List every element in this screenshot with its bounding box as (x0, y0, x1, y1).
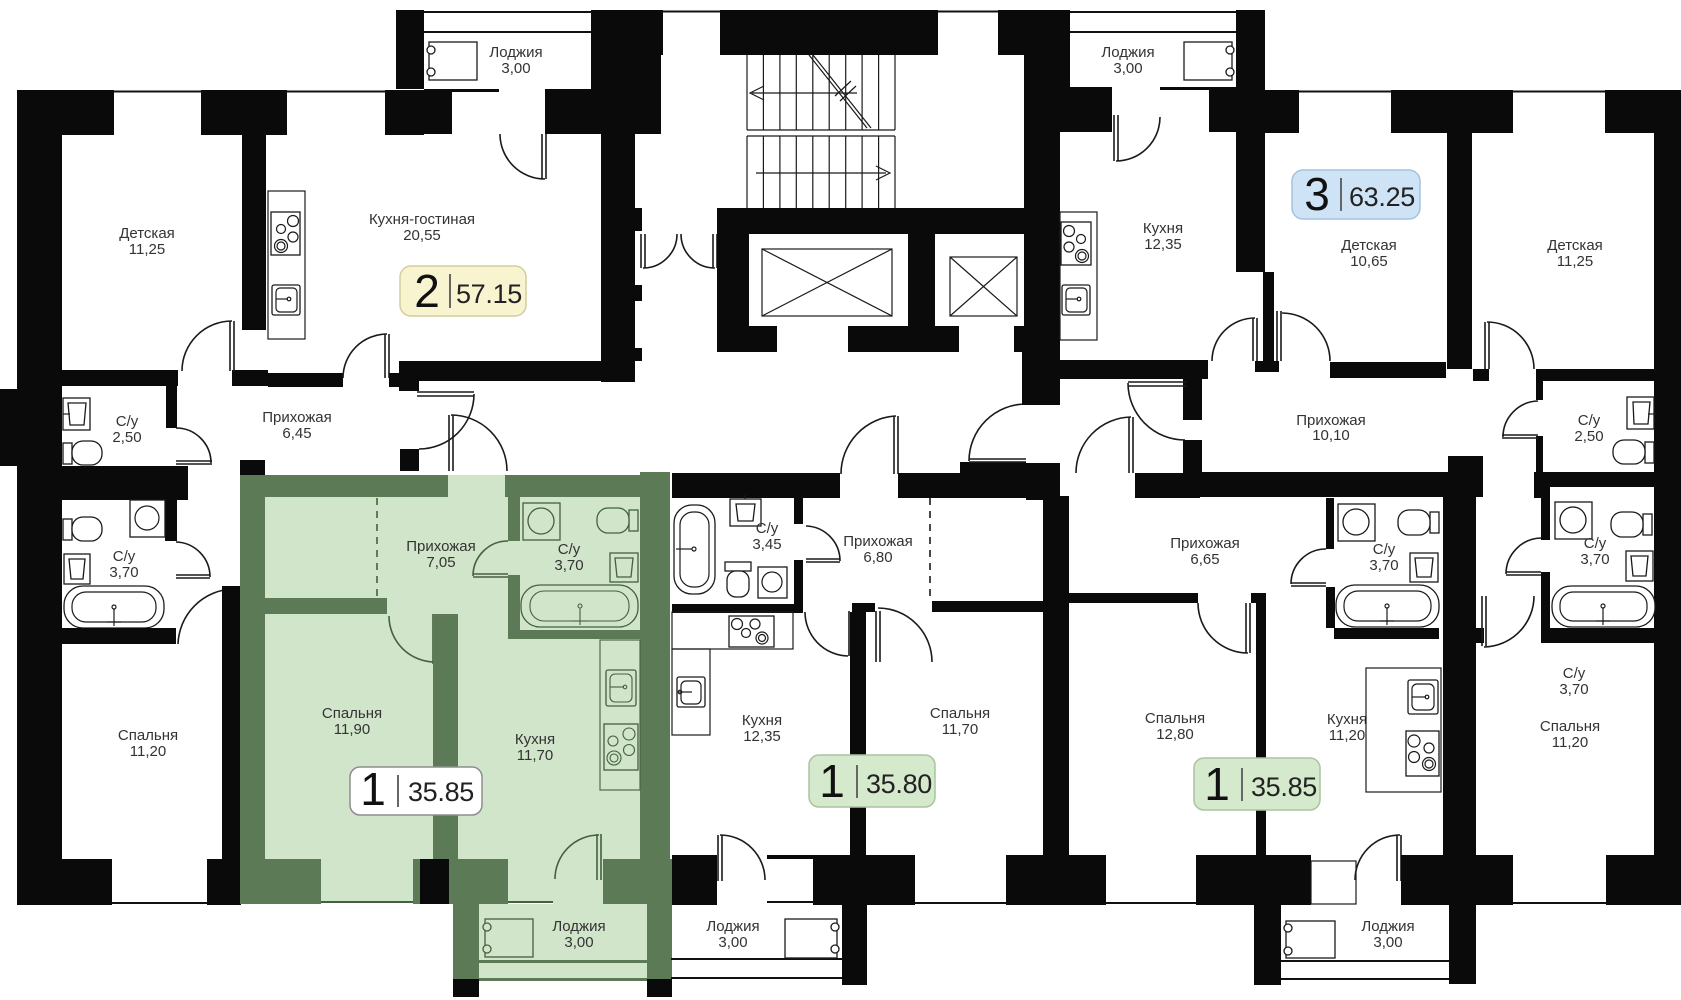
svg-text:11,20: 11,20 (1552, 734, 1588, 751)
svg-text:1: 1 (360, 763, 386, 815)
svg-text:С/у: С/у (1578, 412, 1601, 429)
svg-text:3: 3 (1304, 168, 1330, 220)
svg-text:7,05: 7,05 (426, 554, 455, 571)
svg-text:10,65: 10,65 (1350, 253, 1388, 270)
svg-text:3,70: 3,70 (1369, 557, 1398, 574)
svg-text:3,00: 3,00 (564, 934, 593, 951)
svg-text:1: 1 (1204, 758, 1230, 810)
svg-text:12,80: 12,80 (1156, 726, 1194, 743)
svg-text:Прихожая: Прихожая (406, 538, 476, 555)
svg-text:6,65: 6,65 (1190, 551, 1219, 568)
svg-text:Лоджия: Лоджия (552, 918, 605, 935)
svg-text:Прихожая: Прихожая (843, 533, 913, 550)
svg-text:С/у: С/у (1563, 665, 1586, 682)
svg-text:12,35: 12,35 (1144, 236, 1182, 253)
svg-text:Прихожая: Прихожая (262, 409, 332, 426)
svg-text:С/у: С/у (113, 548, 136, 565)
svg-text:Спальня: Спальня (118, 727, 178, 744)
svg-text:С/у: С/у (756, 520, 779, 537)
svg-text:3,70: 3,70 (1559, 681, 1588, 698)
svg-text:20,55: 20,55 (403, 227, 441, 244)
svg-text:Лоджия: Лоджия (706, 918, 759, 935)
svg-text:2: 2 (414, 265, 440, 317)
svg-text:11,90: 11,90 (334, 721, 370, 738)
svg-text:Спальня: Спальня (322, 705, 382, 722)
svg-text:35.85: 35.85 (408, 777, 474, 807)
svg-text:2,50: 2,50 (1574, 428, 1603, 445)
svg-text:Детская: Детская (1547, 237, 1603, 254)
svg-text:3,45: 3,45 (752, 536, 781, 553)
svg-text:11,25: 11,25 (129, 241, 165, 258)
svg-text:Кухня: Кухня (1143, 220, 1183, 237)
svg-text:Прихожая: Прихожая (1170, 535, 1240, 552)
svg-text:Спальня: Спальня (1540, 718, 1600, 735)
svg-text:6,80: 6,80 (863, 549, 892, 566)
svg-text:11,20: 11,20 (1329, 727, 1365, 744)
svg-text:11,70: 11,70 (942, 721, 978, 738)
svg-text:С/у: С/у (558, 541, 581, 558)
svg-text:С/у: С/у (116, 413, 139, 430)
svg-text:11,20: 11,20 (130, 743, 166, 760)
svg-text:6,45: 6,45 (282, 425, 311, 442)
svg-text:35.80: 35.80 (866, 769, 932, 799)
svg-text:3,70: 3,70 (554, 557, 583, 574)
svg-text:11,25: 11,25 (1557, 253, 1593, 270)
svg-text:3,70: 3,70 (109, 564, 138, 581)
svg-text:12,35: 12,35 (743, 728, 781, 745)
svg-text:С/у: С/у (1373, 541, 1396, 558)
svg-text:Детская: Детская (119, 225, 175, 242)
svg-text:С/у: С/у (1584, 535, 1607, 552)
svg-text:Спальня: Спальня (1145, 710, 1205, 727)
svg-text:3,00: 3,00 (1373, 934, 1402, 951)
svg-text:Кухня-гостиная: Кухня-гостиная (369, 211, 475, 228)
svg-text:11,70: 11,70 (517, 747, 553, 764)
svg-text:10,10: 10,10 (1312, 427, 1350, 444)
svg-text:Кухня: Кухня (515, 731, 555, 748)
svg-text:Спальня: Спальня (930, 705, 990, 722)
svg-text:3,00: 3,00 (501, 60, 530, 77)
svg-text:Лоджия: Лоджия (489, 44, 542, 61)
svg-text:Кухня: Кухня (1327, 711, 1367, 728)
svg-text:Кухня: Кухня (742, 712, 782, 729)
svg-text:2,50: 2,50 (112, 429, 141, 446)
svg-text:Детская: Детская (1341, 237, 1397, 254)
svg-text:63.25: 63.25 (1349, 182, 1415, 212)
svg-text:3,70: 3,70 (1580, 551, 1609, 568)
svg-text:3,00: 3,00 (718, 934, 747, 951)
svg-text:Лоджия: Лоджия (1101, 44, 1154, 61)
svg-text:3,00: 3,00 (1113, 60, 1142, 77)
svg-text:Лоджия: Лоджия (1361, 918, 1414, 935)
svg-text:57.15: 57.15 (456, 279, 522, 309)
svg-text:1: 1 (819, 755, 845, 807)
svg-text:35.85: 35.85 (1251, 772, 1317, 802)
